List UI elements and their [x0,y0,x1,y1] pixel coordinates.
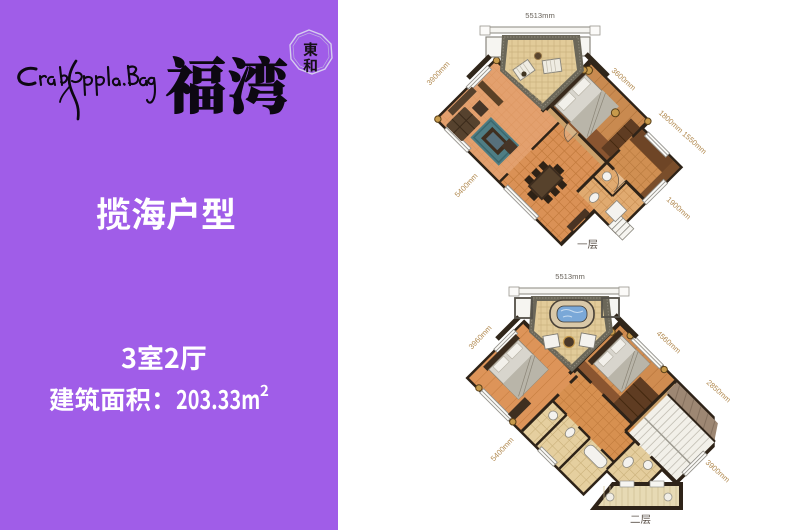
svg-text:5513mm: 5513mm [525,11,555,20]
svg-text:1900mm: 1900mm [665,195,693,221]
svg-text:3900mm: 3900mm [425,59,452,87]
svg-text:3900mm: 3900mm [704,458,732,484]
svg-text:5400mm: 5400mm [489,435,516,463]
svg-text:5400mm: 5400mm [453,171,480,199]
svg-text:3960mm: 3960mm [467,323,494,351]
svg-text:2850mm: 2850mm [705,378,733,404]
svg-text:5513mm: 5513mm [555,272,585,281]
svg-text:4560mm: 4560mm [655,329,683,355]
